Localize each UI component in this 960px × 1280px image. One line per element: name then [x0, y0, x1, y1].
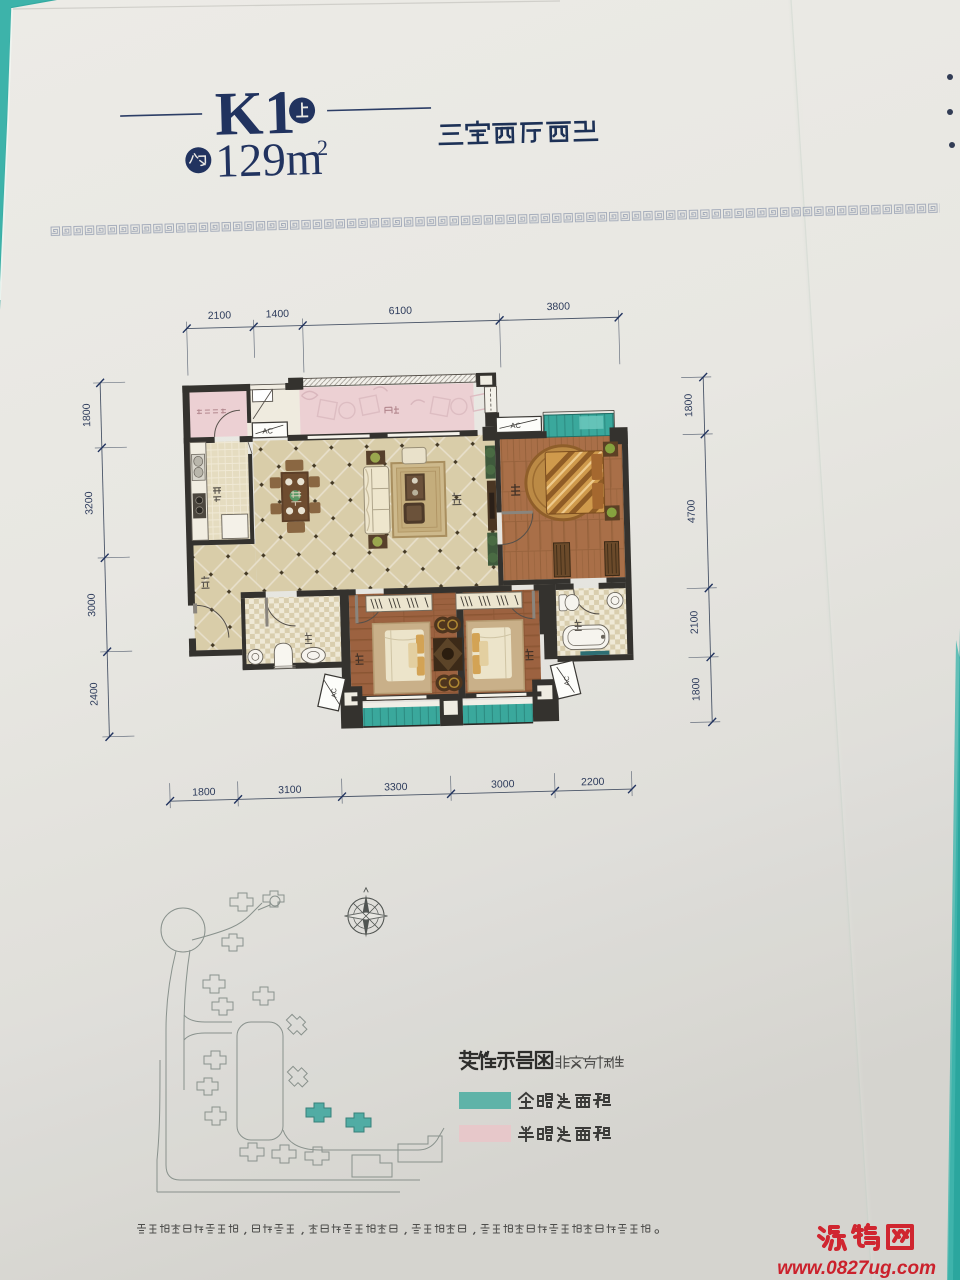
- svg-text:3800: 3800: [546, 301, 570, 314]
- svg-text:AC: AC: [564, 676, 571, 686]
- svg-text:3300: 3300: [384, 781, 408, 794]
- svg-text:2100: 2100: [208, 309, 232, 322]
- svg-text:3200: 3200: [83, 491, 96, 515]
- svg-text:AC: AC: [510, 421, 521, 430]
- svg-text:3000: 3000: [86, 593, 99, 617]
- svg-text:1800: 1800: [683, 393, 696, 417]
- svg-text:129m: 129m: [215, 133, 323, 188]
- svg-text:6100: 6100: [389, 305, 413, 318]
- svg-text:2200: 2200: [581, 776, 605, 789]
- svg-text:1800: 1800: [81, 403, 94, 427]
- svg-text:1800: 1800: [192, 786, 216, 799]
- svg-text:1400: 1400: [266, 308, 290, 321]
- svg-text:www.0827ug.com: www.0827ug.com: [777, 1258, 936, 1279]
- svg-text:4700: 4700: [685, 499, 698, 523]
- svg-text:AC: AC: [262, 426, 273, 435]
- svg-text:1800: 1800: [690, 677, 703, 701]
- svg-text:2: 2: [317, 135, 329, 160]
- svg-text:3100: 3100: [278, 784, 302, 797]
- svg-text:AC: AC: [331, 688, 338, 698]
- svg-text:2100: 2100: [688, 610, 701, 634]
- svg-text:3000: 3000: [491, 778, 515, 791]
- svg-text:2400: 2400: [88, 682, 101, 706]
